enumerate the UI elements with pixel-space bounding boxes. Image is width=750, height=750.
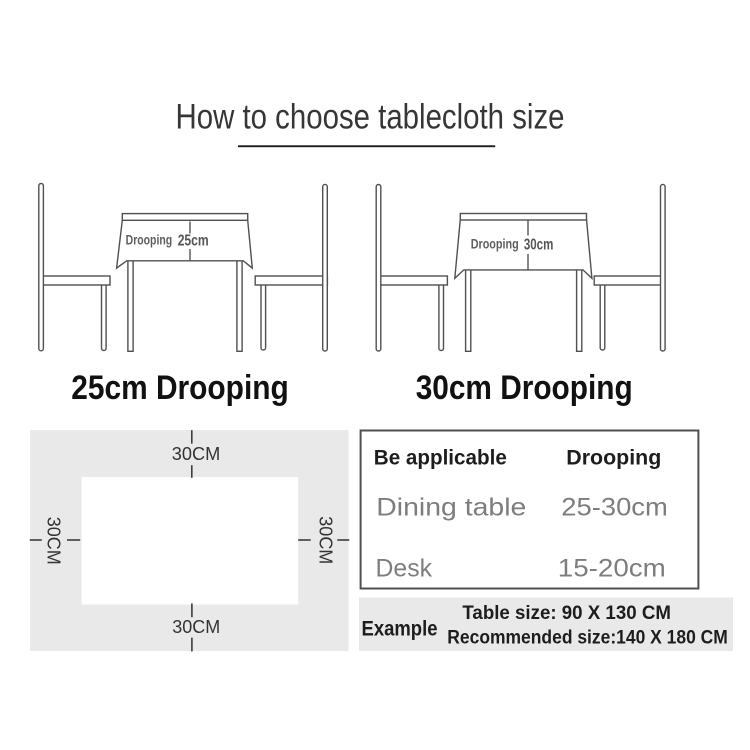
svg-text:25cm: 25cm [178,233,209,250]
svg-text:30CM: 30CM [44,517,64,565]
svg-text:Example: Example [362,618,438,641]
svg-text:Drooping: Drooping [566,447,661,470]
svg-text:30CM: 30CM [316,516,336,564]
svg-text:25cm Drooping: 25cm Drooping [71,369,289,407]
svg-text:How to choose tablecloth size: How to choose tablecloth size [176,97,565,137]
svg-text:Desk: Desk [376,554,433,582]
svg-text:Table size: 90 X 130 CM: Table size: 90 X 130 CM [462,603,671,624]
svg-text:30cm: 30cm [524,237,554,254]
svg-text:Dining table: Dining table [376,493,526,521]
svg-text:30cm Drooping: 30cm Drooping [416,369,633,407]
svg-text:Recommended size:140 X 180 CM: Recommended size:140 X 180 CM [447,628,728,649]
svg-text:30CM: 30CM [172,444,221,464]
svg-text:15-20cm: 15-20cm [558,554,666,582]
svg-text:Drooping: Drooping [471,236,519,252]
svg-text:Drooping: Drooping [126,232,173,248]
svg-text:30CM: 30CM [172,617,220,637]
svg-text:25-30cm: 25-30cm [561,493,668,521]
svg-text:Be applicable: Be applicable [374,447,507,470]
